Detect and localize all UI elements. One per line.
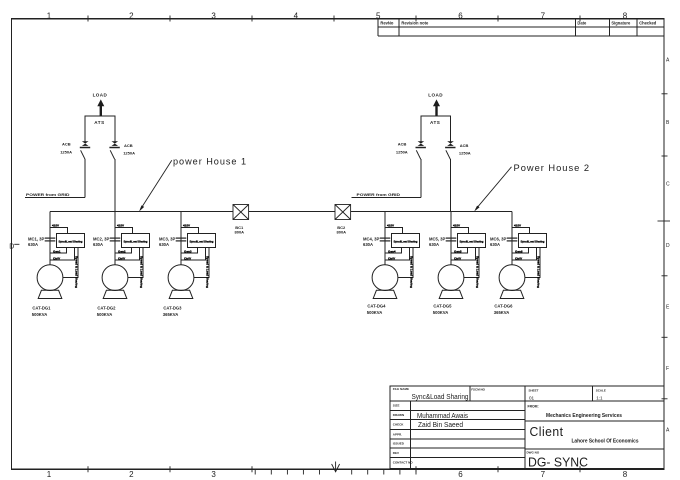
svg-text:FSCM NO: FSCM NO xyxy=(471,387,485,391)
svg-text:2: 2 xyxy=(129,11,134,20)
svg-text:CtrlV: CtrlV xyxy=(388,256,395,260)
svg-text:500KVA: 500KVA xyxy=(367,310,383,315)
svg-text:630A: 630A xyxy=(429,242,439,247)
svg-text:DWG NO: DWG NO xyxy=(527,451,540,455)
svg-text:LOAD: LOAD xyxy=(428,93,443,98)
svg-text:SHEET: SHEET xyxy=(529,389,539,393)
svg-text:01: 01 xyxy=(529,396,535,401)
svg-text:800A: 800A xyxy=(235,230,245,235)
svg-text:8: 8 xyxy=(623,11,628,20)
svg-text:FILE NAME: FILE NAME xyxy=(393,387,409,391)
svg-text:Speed & Load Sharing: Speed & Load Sharing xyxy=(205,256,209,288)
svg-text:Sync&Load Sharing: Sync&Load Sharing xyxy=(190,240,214,244)
svg-text:500KVA: 500KVA xyxy=(32,312,48,317)
svg-text:7: 7 xyxy=(541,11,546,20)
svg-text:CtrlV: CtrlV xyxy=(118,256,125,260)
svg-text:1250A: 1250A xyxy=(60,149,72,154)
svg-text:Revision note: Revision note xyxy=(401,20,429,25)
svg-text:415V: 415V xyxy=(387,224,394,228)
svg-text:630A: 630A xyxy=(28,242,38,247)
svg-text:415V: 415V xyxy=(514,224,521,228)
svg-text:CAT-DG3: CAT-DG3 xyxy=(163,305,182,310)
svg-text:415V: 415V xyxy=(183,224,190,228)
svg-text:CAT-DG6: CAT-DG6 xyxy=(494,304,513,309)
svg-text:APPR.: APPR. xyxy=(393,432,402,436)
svg-text:F: F xyxy=(666,366,669,372)
svg-text:E: E xyxy=(666,305,670,311)
svg-text:Signature: Signature xyxy=(611,20,631,25)
svg-text:CAT-DG4: CAT-DG4 xyxy=(367,304,386,309)
svg-text:1250A: 1250A xyxy=(459,151,471,156)
svg-text:Speed & Load Sharing: Speed & Load Sharing xyxy=(409,256,413,288)
svg-text:POWER from GRID: POWER from GRID xyxy=(26,192,70,197)
svg-text:Speed & Load Sharing: Speed & Load Sharing xyxy=(475,256,479,288)
svg-text:500KVA: 500KVA xyxy=(433,310,449,315)
svg-text:3: 3 xyxy=(211,470,216,479)
svg-text:Sync&Load Sharing: Sync&Load Sharing xyxy=(59,240,83,244)
svg-text:Mechanics Engineering Services: Mechanics Engineering Services xyxy=(546,413,622,419)
svg-text:Sync&Load Sharing: Sync&Load Sharing xyxy=(521,240,545,244)
svg-text:A: A xyxy=(666,58,670,64)
svg-text:FROM:: FROM: xyxy=(528,405,539,409)
svg-text:D: D xyxy=(9,244,14,251)
svg-text:1250A: 1250A xyxy=(123,151,135,156)
svg-text:630A: 630A xyxy=(490,242,500,247)
svg-text:Sync&Load Sharing: Sync&Load Sharing xyxy=(394,240,418,244)
svg-text:Gen4: Gen4 xyxy=(388,250,396,254)
svg-text:3: 3 xyxy=(211,11,216,20)
svg-text:1250A: 1250A xyxy=(396,149,408,154)
svg-text:630A: 630A xyxy=(363,242,373,247)
svg-text:Sync&Load Sharing: Sync&Load Sharing xyxy=(460,240,484,244)
svg-text:ACB: ACB xyxy=(124,143,133,148)
svg-text:500KVA: 500KVA xyxy=(97,312,113,317)
svg-text:Client: Client xyxy=(530,424,564,439)
svg-text:CAT-DG2: CAT-DG2 xyxy=(97,305,116,310)
svg-text:630A: 630A xyxy=(93,242,103,247)
svg-text:1: 1 xyxy=(47,470,52,479)
svg-text:Lahore School Of Economics: Lahore School Of Economics xyxy=(572,439,639,445)
svg-text:8: 8 xyxy=(623,470,628,479)
svg-text:2: 2 xyxy=(129,470,134,479)
svg-text:POWER from GRID: POWER from GRID xyxy=(357,192,401,197)
svg-text:C: C xyxy=(666,182,670,188)
svg-text:REV: REV xyxy=(393,451,399,455)
svg-text:SCALE: SCALE xyxy=(596,389,606,393)
svg-text:Gen5: Gen5 xyxy=(454,250,462,254)
svg-text:4: 4 xyxy=(294,11,299,20)
svg-text:Power House 2: Power House 2 xyxy=(514,163,591,174)
svg-text:CONTACT NO: CONTACT NO xyxy=(393,460,413,464)
svg-text:SIZE: SIZE xyxy=(393,404,400,408)
svg-text:RevNo: RevNo xyxy=(380,20,393,25)
svg-text:LOAD: LOAD xyxy=(93,93,108,98)
svg-text:CtrlV: CtrlV xyxy=(515,256,522,260)
svg-text:Gen6: Gen6 xyxy=(515,250,523,254)
svg-text:ACB: ACB xyxy=(398,142,407,147)
svg-text:CtrlV: CtrlV xyxy=(53,256,60,260)
svg-text:630A: 630A xyxy=(159,242,169,247)
svg-text:CAT-DG5: CAT-DG5 xyxy=(433,304,452,309)
svg-text:CtrlV: CtrlV xyxy=(184,256,191,260)
svg-text:power House 1: power House 1 xyxy=(173,157,247,168)
svg-text:7: 7 xyxy=(541,470,546,479)
svg-text:DG- SYNC: DG- SYNC xyxy=(528,456,588,470)
svg-text:CHECK: CHECK xyxy=(393,423,405,427)
svg-text:Speed & Load Sharing: Speed & Load Sharing xyxy=(74,256,78,288)
svg-text:Zaid Bin Saeed: Zaid Bin Saeed xyxy=(418,422,463,429)
svg-text:415V: 415V xyxy=(453,224,460,228)
svg-text:CAT-DG1: CAT-DG1 xyxy=(32,305,51,310)
svg-text:Gen1: Gen1 xyxy=(53,250,61,254)
svg-text:415V: 415V xyxy=(52,224,59,228)
svg-text:Checked: Checked xyxy=(639,20,657,25)
svg-text:Gen3: Gen3 xyxy=(184,250,192,254)
svg-text:Speed & Load Sharing: Speed & Load Sharing xyxy=(139,256,143,288)
svg-text:D: D xyxy=(666,243,670,249)
svg-text:1: 1 xyxy=(47,11,52,20)
svg-text:ATS: ATS xyxy=(94,120,104,125)
svg-text:ATS: ATS xyxy=(430,120,440,125)
svg-text:365KVA: 365KVA xyxy=(494,310,510,315)
svg-text:ISSUED: ISSUED xyxy=(393,442,405,446)
svg-text:A: A xyxy=(666,428,670,434)
svg-text:800A: 800A xyxy=(337,230,347,235)
svg-text:ACB: ACB xyxy=(460,143,469,148)
svg-text:6: 6 xyxy=(458,470,463,479)
svg-text:Muhammad Awais: Muhammad Awais xyxy=(417,413,468,420)
svg-text:CtrlV: CtrlV xyxy=(454,256,461,260)
svg-text:Speed & Load Sharing: Speed & Load Sharing xyxy=(536,256,540,288)
svg-text:Date: Date xyxy=(577,20,587,25)
svg-text:DRAWN: DRAWN xyxy=(393,413,404,417)
svg-text:Sync&Load Sharing: Sync&Load Sharing xyxy=(124,240,148,244)
svg-text:415V: 415V xyxy=(117,224,124,228)
svg-text:Sync&Load Sharing: Sync&Load Sharing xyxy=(412,394,469,401)
svg-text:B: B xyxy=(666,120,670,126)
svg-text:Gen2: Gen2 xyxy=(118,250,126,254)
svg-text:ACB: ACB xyxy=(62,142,71,147)
svg-text:365KVA: 365KVA xyxy=(163,312,179,317)
svg-text:6: 6 xyxy=(458,11,463,20)
svg-text:1:1: 1:1 xyxy=(596,396,603,401)
